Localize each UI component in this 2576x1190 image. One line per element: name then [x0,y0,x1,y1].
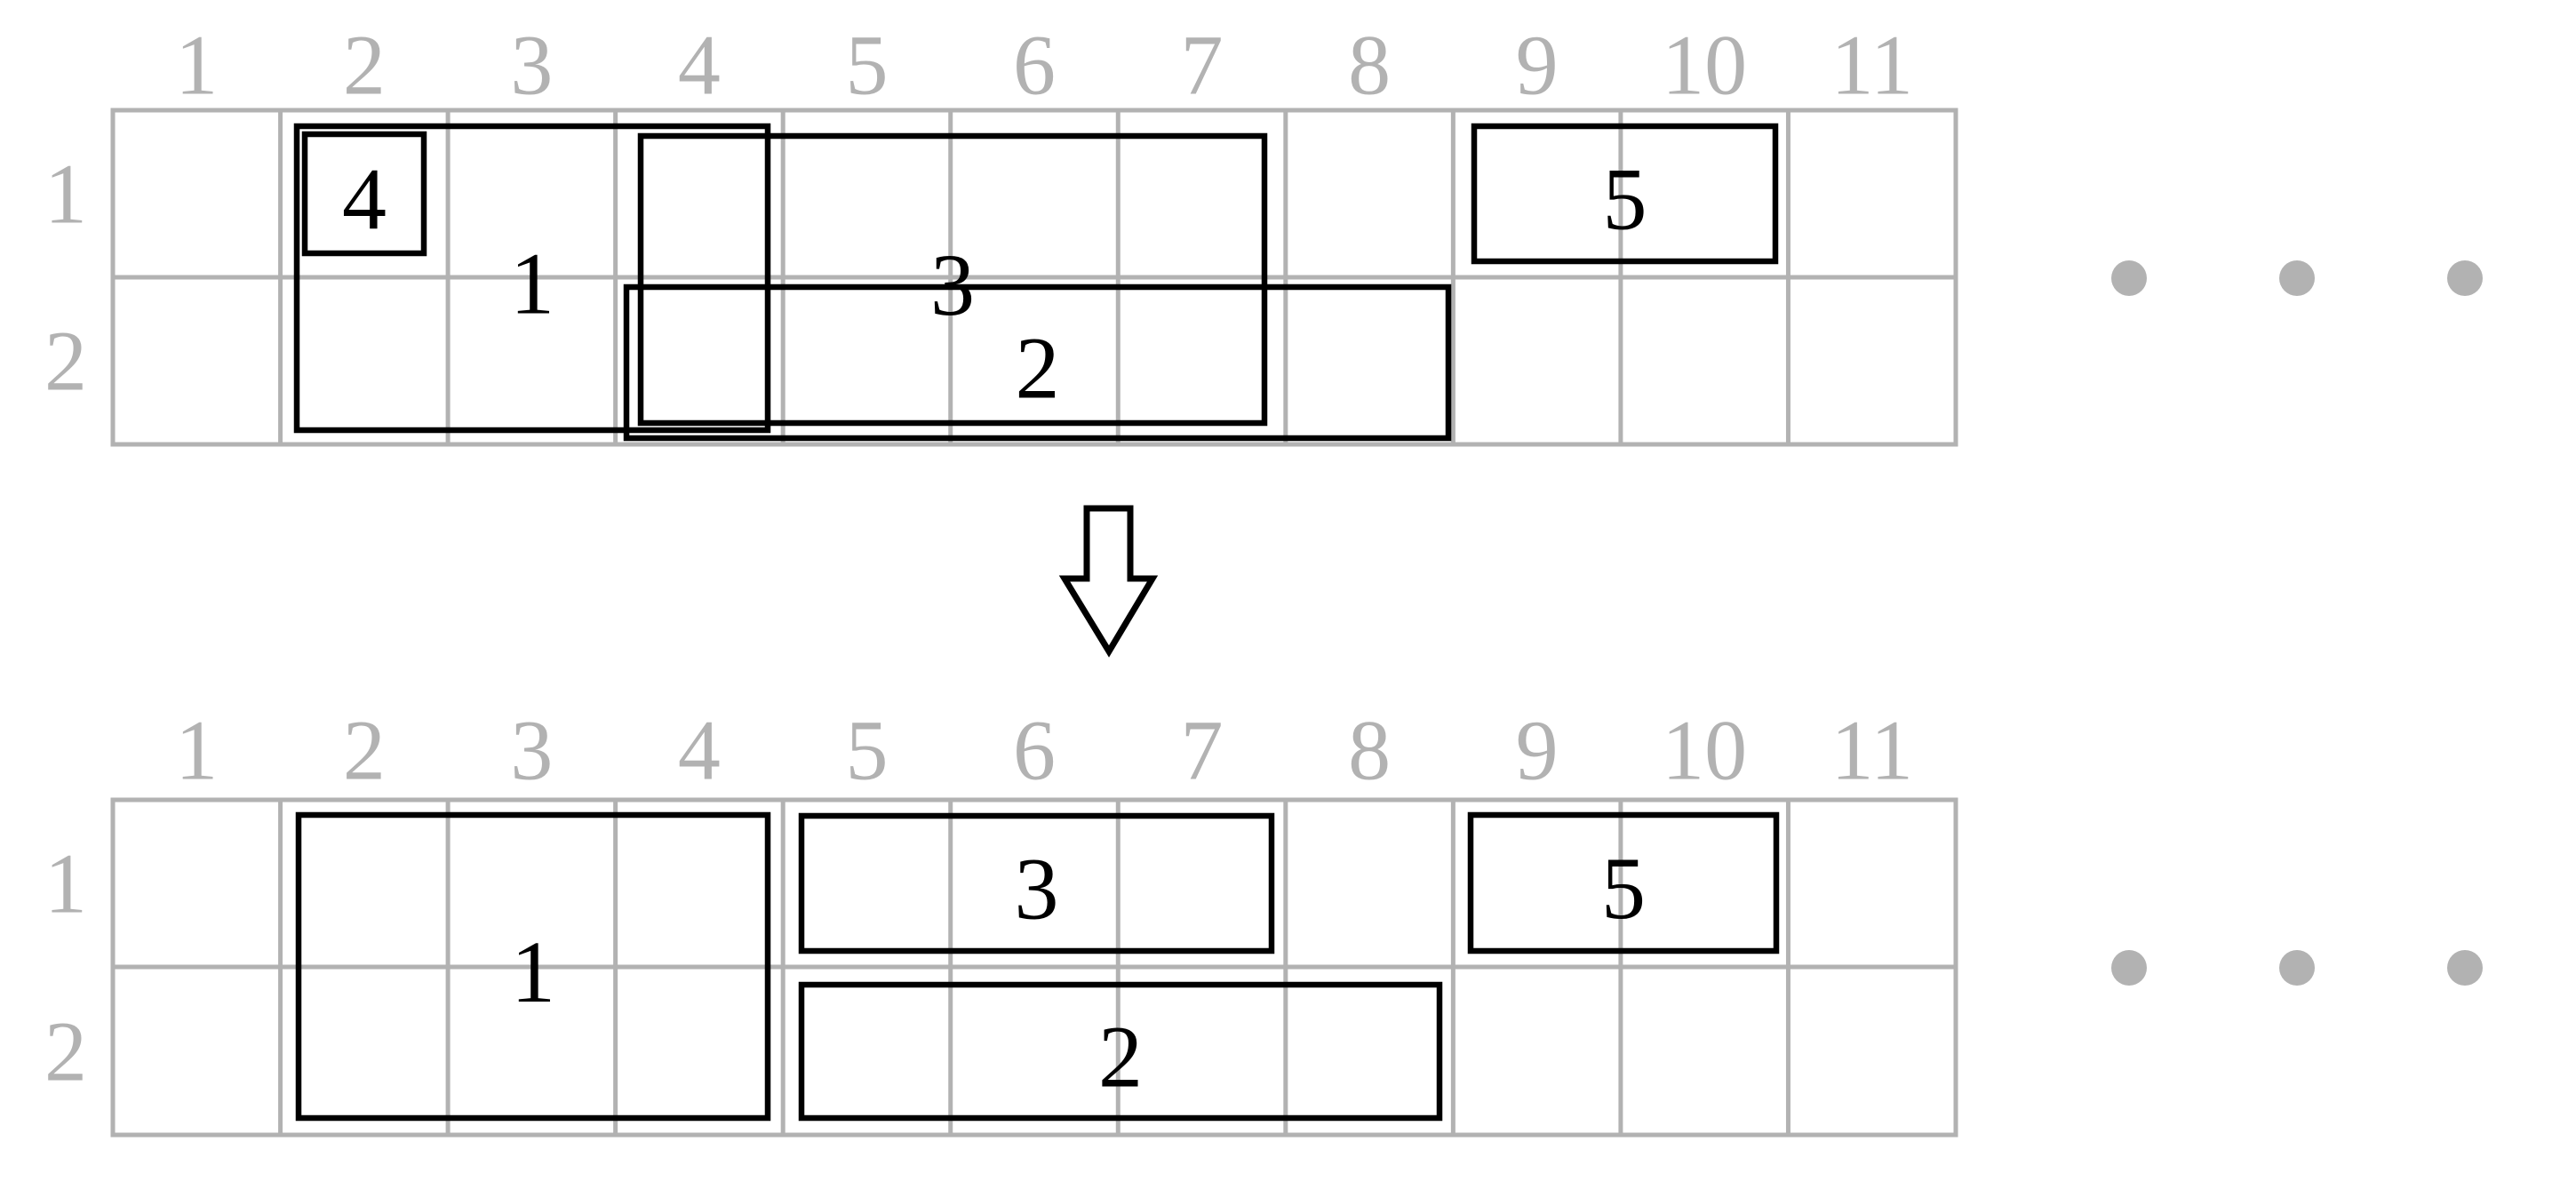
ellipsis-dot-icon [2447,260,2483,296]
column-label: 4 [678,703,721,798]
column-label: 9 [1516,703,1559,798]
panel-before: 12345678910111214325 [44,18,2483,445]
column-label: 2 [343,703,386,798]
column-label: 10 [1662,18,1747,113]
ellipsis-dot-icon [2279,950,2315,986]
row-label: 2 [44,1004,87,1099]
job-rect-label: 1 [511,922,555,1021]
job-rect-label: 1 [510,235,554,333]
column-label: 3 [510,703,553,798]
column-label: 5 [845,703,888,798]
transformation-down-arrow-icon [1065,508,1152,651]
column-label: 1 [175,703,218,798]
figure-page: 123456789101112143251234567891011121325 [0,0,2576,1190]
column-label: 11 [1831,18,1913,113]
ellipsis-dot-icon [2447,950,2483,986]
job-2-after: 2 [802,985,1440,1118]
column-label: 9 [1516,18,1559,113]
column-label: 8 [1348,703,1391,798]
job-2-before: 2 [626,287,1448,438]
column-label: 10 [1662,703,1747,798]
panel-after: 1234567891011121325 [44,703,2483,1136]
ellipsis-dots [2111,260,2483,296]
row-label: 1 [44,836,87,931]
job-4-before: 4 [305,134,424,253]
column-label: 2 [343,18,386,113]
job-rect-label: 2 [1016,319,1060,418]
row-label: 2 [44,314,87,409]
job-rect-label: 5 [1601,839,1646,938]
column-label: 11 [1831,703,1913,798]
job-rect-label: 5 [1603,150,1647,249]
row-label: 1 [44,147,87,242]
ellipsis-dot-icon [2279,260,2315,296]
job-rect-label: 4 [342,150,387,249]
column-label: 8 [1348,18,1391,113]
ellipsis-dot-icon [2111,950,2147,986]
ellipsis-dot-icon [2111,260,2147,296]
column-label: 5 [845,18,888,113]
job-5-before: 5 [1474,126,1775,261]
column-label: 1 [175,18,218,113]
scheduling-figure: 123456789101112143251234567891011121325 [0,0,2576,1190]
job-3-after: 3 [802,816,1272,951]
column-label: 7 [1181,18,1224,113]
job-5-after: 5 [1471,815,1776,951]
column-label: 6 [1013,18,1056,113]
job-rect-label: 2 [1098,1008,1143,1106]
job-rect-label: 3 [1015,840,1059,938]
column-label: 7 [1181,703,1224,798]
column-label: 4 [678,18,721,113]
ellipsis-dots [2111,950,2483,986]
column-label: 6 [1013,703,1056,798]
column-label: 3 [510,18,553,113]
